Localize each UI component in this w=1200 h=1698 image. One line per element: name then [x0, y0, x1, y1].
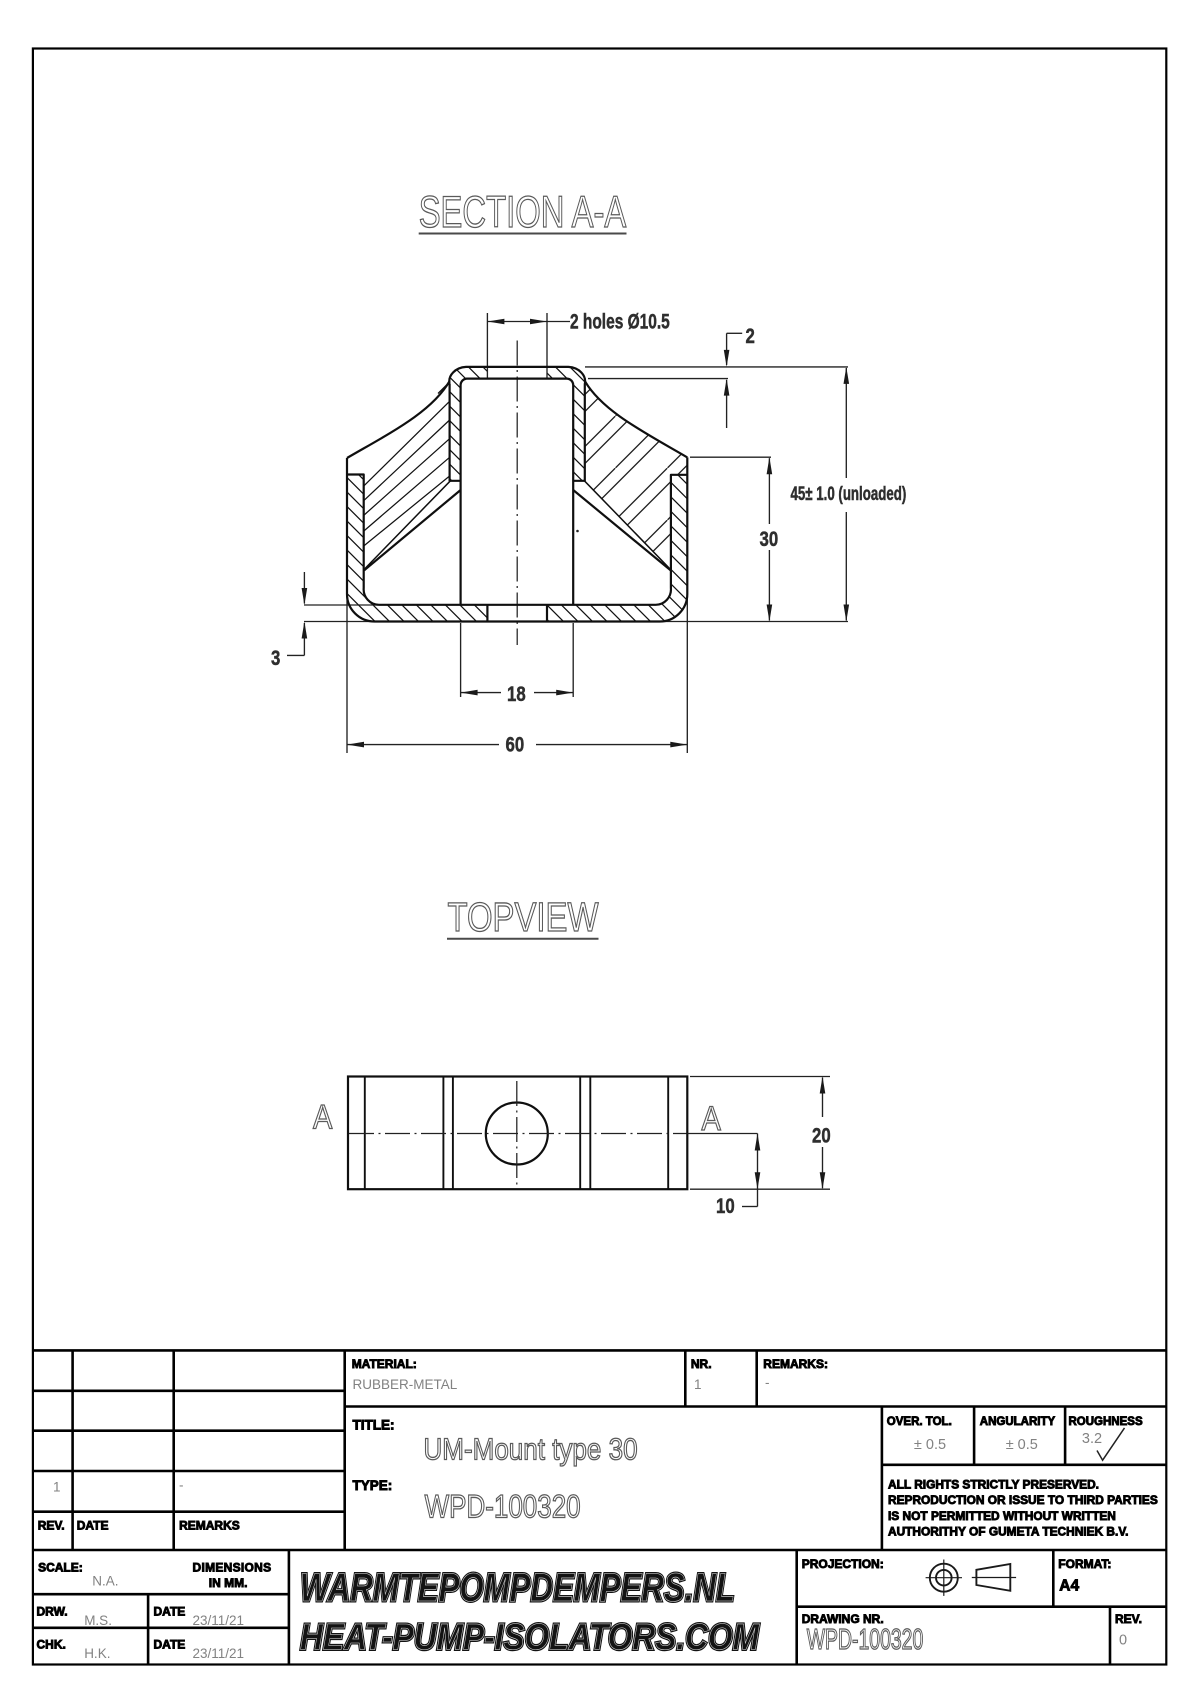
svg-text:WPD-100320: WPD-100320 — [807, 1624, 924, 1656]
svg-text:REMARKS:: REMARKS: — [763, 1357, 828, 1371]
svg-text:ANGULARITY: ANGULARITY — [980, 1416, 1056, 1428]
svg-text:OVER. TOL.: OVER. TOL. — [887, 1416, 952, 1428]
svg-text:± 0.5: ± 0.5 — [914, 1437, 946, 1453]
svg-text:ROUGHNESS: ROUGHNESS — [1069, 1416, 1143, 1428]
svg-text:WARMTEPOMPDEMPERS.NL: WARMTEPOMPDEMPERS.NL — [300, 1565, 735, 1610]
svg-text:20: 20 — [812, 1125, 831, 1148]
svg-text:ALL RIGHTS STRICTLY PRESERVED.: ALL RIGHTS STRICTLY PRESERVED. — [888, 1478, 1099, 1492]
svg-text:H.K.: H.K. — [84, 1646, 110, 1661]
svg-text:2 holes Ø10.5: 2 holes Ø10.5 — [570, 309, 670, 333]
svg-text:REPRODUCTION OR ISSUE TO THIRD: REPRODUCTION OR ISSUE TO THIRD PARTIES — [888, 1493, 1158, 1507]
svg-text:10: 10 — [716, 1195, 735, 1218]
svg-text:REV.: REV. — [1115, 1612, 1142, 1626]
svg-text:DATE: DATE — [154, 1604, 186, 1618]
svg-text:TYPE:: TYPE: — [353, 1478, 393, 1493]
svg-text:± 0.5: ± 0.5 — [1006, 1437, 1038, 1453]
svg-text:UM-Mount type 30: UM-Mount type 30 — [424, 1432, 638, 1467]
svg-text:MATERIAL:: MATERIAL: — [352, 1357, 417, 1371]
svg-text:REMARKS: REMARKS — [179, 1519, 240, 1533]
svg-text:3: 3 — [271, 647, 281, 670]
svg-text:REV.: REV. — [38, 1519, 65, 1533]
svg-text:23/11/21: 23/11/21 — [193, 1613, 245, 1628]
svg-text:RUBBER-METAL: RUBBER-METAL — [353, 1377, 458, 1392]
svg-text:A: A — [702, 1099, 722, 1138]
svg-text:DATE: DATE — [154, 1637, 186, 1651]
svg-text:30: 30 — [760, 528, 779, 551]
svg-text:3.2: 3.2 — [1082, 1431, 1102, 1447]
svg-text:TITLE:: TITLE: — [353, 1418, 395, 1433]
svg-text:CHK.: CHK. — [37, 1637, 66, 1651]
svg-text:-: - — [179, 1478, 184, 1493]
svg-text:WPD-100320: WPD-100320 — [425, 1489, 581, 1525]
svg-text:AUTHORITHY OF GUMETA TECHNIEK: AUTHORITHY OF GUMETA TECHNIEK B.V. — [888, 1524, 1128, 1538]
svg-text:NR.: NR. — [691, 1357, 712, 1371]
svg-text:SECTION A-A: SECTION A-A — [419, 188, 627, 237]
svg-text:DIMENSIONS: DIMENSIONS — [193, 1561, 272, 1575]
svg-text:PROJECTION:: PROJECTION: — [802, 1557, 884, 1571]
svg-text:M.S.: M.S. — [84, 1613, 112, 1628]
svg-text:DATE: DATE — [77, 1519, 109, 1533]
svg-text:1: 1 — [694, 1377, 702, 1392]
svg-text:2: 2 — [746, 325, 755, 348]
svg-text:-: - — [765, 1375, 770, 1390]
svg-text:HEAT-PUMP-ISOLATORS.COM: HEAT-PUMP-ISOLATORS.COM — [300, 1617, 760, 1658]
svg-text:TOPVIEW: TOPVIEW — [448, 893, 600, 939]
svg-text:60: 60 — [506, 734, 525, 757]
svg-text:FORMAT:: FORMAT: — [1058, 1557, 1111, 1571]
svg-text:SCALE:: SCALE: — [38, 1561, 83, 1575]
svg-text:1: 1 — [53, 1480, 61, 1495]
svg-text:DRW.: DRW. — [37, 1604, 68, 1618]
svg-text:A4: A4 — [1059, 1578, 1079, 1595]
svg-text:0: 0 — [1119, 1633, 1127, 1649]
svg-text:18: 18 — [507, 683, 526, 706]
svg-text:A: A — [313, 1097, 333, 1136]
svg-text:IN MM.: IN MM. — [209, 1576, 248, 1590]
svg-text:45± 1.0 (unloaded): 45± 1.0 (unloaded) — [791, 484, 907, 505]
svg-text:IS NOT PERMITTED WITHOUT WRITT: IS NOT PERMITTED WITHOUT WRITTEN — [888, 1509, 1116, 1523]
svg-text:23/11/21: 23/11/21 — [193, 1646, 245, 1661]
svg-text:N.A.: N.A. — [92, 1574, 118, 1589]
